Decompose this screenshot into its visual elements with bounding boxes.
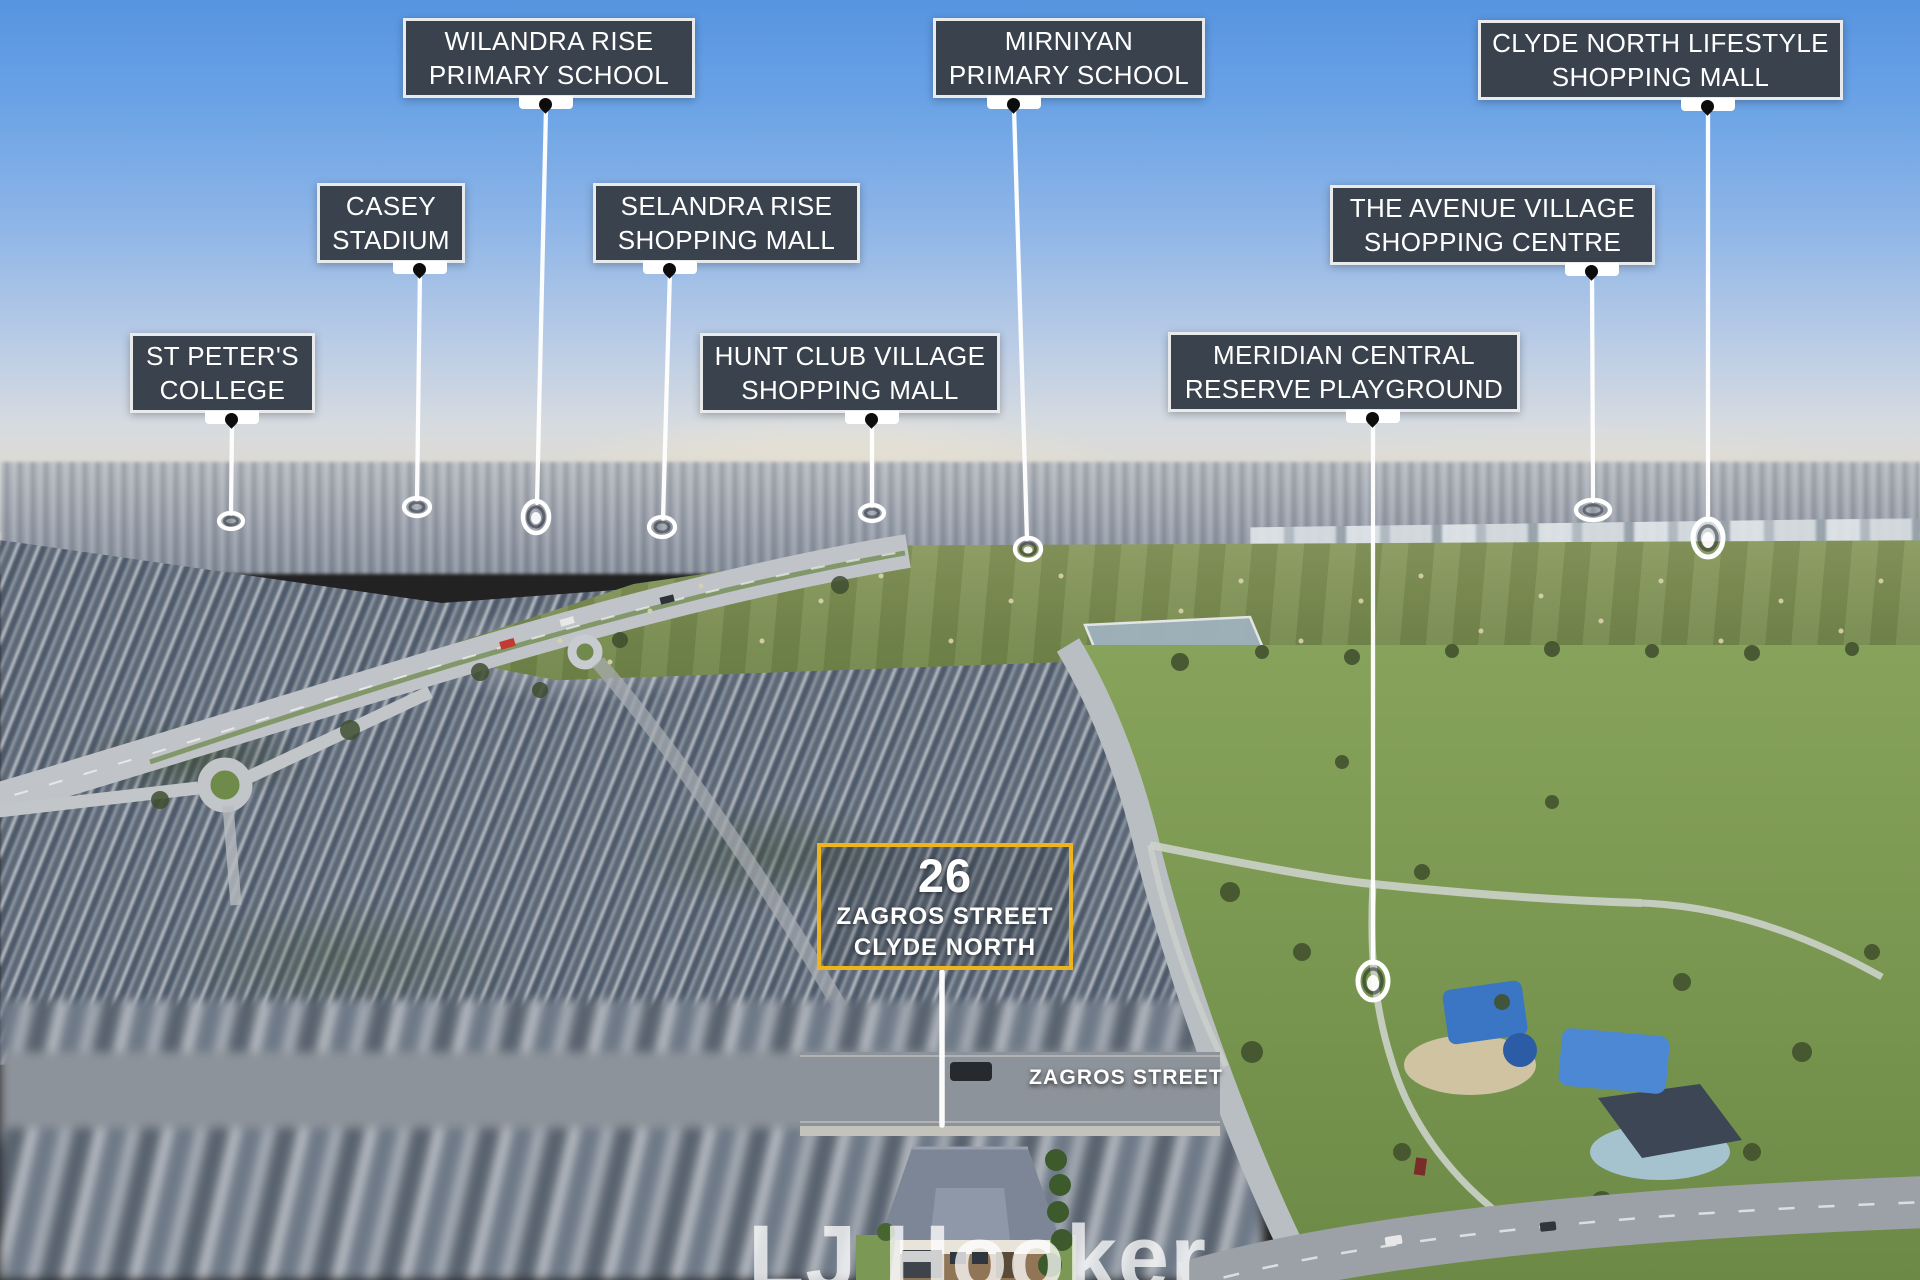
landmark-name-line2: RESERVE PLAYGROUND [1177, 372, 1511, 406]
landmark-name-line1: THE AVENUE VILLAGE [1339, 191, 1646, 225]
landmark-label-meridian-central-reserve-playground: MERIDIAN CENTRAL RESERVE PLAYGROUND [1168, 332, 1520, 412]
landmark-box: MIRNIYAN PRIMARY SCHOOL [933, 18, 1205, 98]
property-street-number: 26 [821, 851, 1069, 901]
landmark-name-line2: SHOPPING MALL [1487, 60, 1834, 94]
map-pin-icon [1346, 410, 1400, 423]
street-name-label: ZAGROS STREET [1028, 1066, 1224, 1090]
map-pin-icon [519, 96, 573, 109]
landmark-name-line1: CLYDE NORTH LIFESTYLE [1487, 26, 1834, 60]
map-pin-icon [987, 96, 1041, 109]
pointer-line-wilandra [537, 108, 546, 503]
map-pin-icon [205, 411, 259, 424]
landmark-name-line2: PRIMARY SCHOOL [412, 58, 686, 92]
landmark-box: THE AVENUE VILLAGE SHOPPING CENTRE [1330, 185, 1655, 265]
landmark-name-line2: STADIUM [326, 223, 456, 257]
marker-clyde [1693, 519, 1723, 557]
landmark-name-line2: SHOPPING MALL [709, 373, 991, 407]
property-address-callout: 26 ZAGROS STREET CLYDE NORTH [817, 843, 1073, 970]
pointer-line-selandra [663, 270, 670, 519]
landmark-label-mirniyan-primary-school: MIRNIYAN PRIMARY SCHOOL [933, 18, 1205, 98]
landmark-name-line1: MERIDIAN CENTRAL [1177, 338, 1511, 372]
landmark-box: MERIDIAN CENTRAL RESERVE PLAYGROUND [1168, 332, 1520, 412]
property-street-name: ZAGROS STREET [821, 901, 1069, 932]
landmark-box: CASEY STADIUM [317, 183, 465, 263]
pointer-line-mirniyan [1014, 108, 1027, 539]
landmark-box: WILANDRA RISE PRIMARY SCHOOL [403, 18, 695, 98]
landmark-box: SELANDRA RISE SHOPPING MALL [593, 183, 860, 263]
landmark-label-casey-stadium: CASEY STADIUM [317, 183, 465, 263]
pointer-line-stpeters [231, 424, 232, 514]
landmark-name-line2: SHOPPING MALL [602, 223, 851, 257]
map-pin-icon [393, 261, 447, 274]
landmark-name-line1: HUNT CLUB VILLAGE [709, 339, 991, 373]
landmark-name-line2: SHOPPING CENTRE [1339, 225, 1646, 259]
landmark-name-line1: MIRNIYAN [942, 24, 1196, 58]
map-pin-icon [643, 261, 697, 274]
landmark-name-line1: SELANDRA RISE [602, 189, 851, 223]
map-pin-icon [845, 411, 899, 424]
landmark-label-wilandra-rise-primary-school: WILANDRA RISE PRIMARY SCHOOL [403, 18, 695, 98]
pointer-line-casey [417, 272, 420, 500]
landmark-box: ST PETER'S COLLEGE [130, 333, 315, 413]
aerial-photo-scene: LJ Hooker WILANDRA [0, 0, 1920, 1280]
pointer-line-avenue [1592, 270, 1593, 501]
landmark-name-line2: PRIMARY SCHOOL [942, 58, 1196, 92]
landmark-box: HUNT CLUB VILLAGE SHOPPING MALL [700, 333, 1000, 413]
landmark-name-line1: WILANDRA RISE [412, 24, 686, 58]
landmark-label-the-avenue-village-shopping-centre: THE AVENUE VILLAGE SHOPPING CENTRE [1330, 185, 1655, 265]
landmark-label-st-peters-college: ST PETER'S COLLEGE [130, 333, 315, 413]
marker-wilandra [523, 501, 549, 533]
landmark-name-line2: COLLEGE [139, 373, 306, 407]
landmark-name-line1: ST PETER'S [139, 339, 306, 373]
landmark-label-clyde-north-lifestyle-shopping-mall: CLYDE NORTH LIFESTYLE SHOPPING MALL [1478, 20, 1843, 100]
landmark-label-hunt-club-village-shopping-mall: HUNT CLUB VILLAGE SHOPPING MALL [700, 333, 1000, 413]
map-pin-icon [1565, 263, 1619, 276]
landmark-label-selandra-rise-shopping-mall: SELANDRA RISE SHOPPING MALL [593, 183, 860, 263]
landmark-box: CLYDE NORTH LIFESTYLE SHOPPING MALL [1478, 20, 1843, 100]
map-pin-icon [1681, 98, 1735, 111]
landmark-name-line1: CASEY [326, 189, 456, 223]
property-suburb: CLYDE NORTH [821, 932, 1069, 963]
marker-mirniyan [1015, 538, 1041, 560]
marker-meridian [1358, 962, 1388, 1000]
